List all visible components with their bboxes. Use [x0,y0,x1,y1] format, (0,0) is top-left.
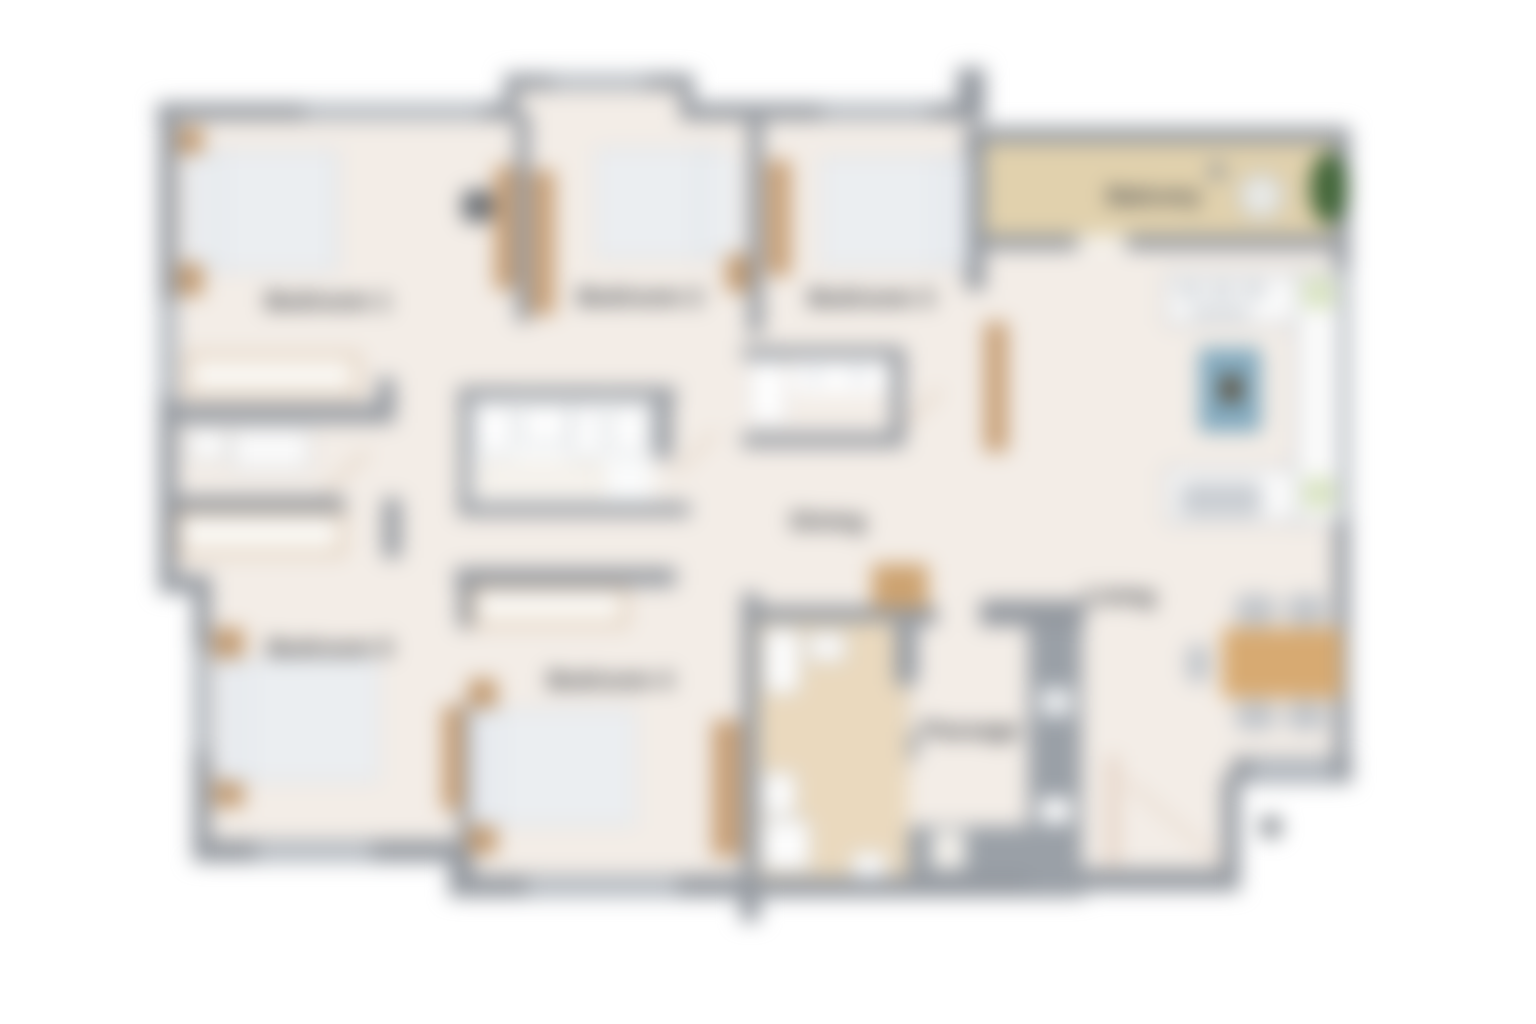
svg-text:Bedroom 5: Bedroom 5 [267,635,392,662]
svg-text:Bedroom 3: Bedroom 3 [808,285,933,312]
svg-text:Bedroom 1: Bedroom 1 [265,288,390,315]
svg-text:Passage: Passage [922,717,1019,744]
svg-text:Living: Living [1085,583,1156,610]
svg-text:Bedroom 2: Bedroom 2 [577,284,702,311]
svg-text:Bedroom 4: Bedroom 4 [547,667,673,694]
svg-text:Dining: Dining [791,508,866,535]
svg-text:Balcony: Balcony [1107,183,1201,210]
